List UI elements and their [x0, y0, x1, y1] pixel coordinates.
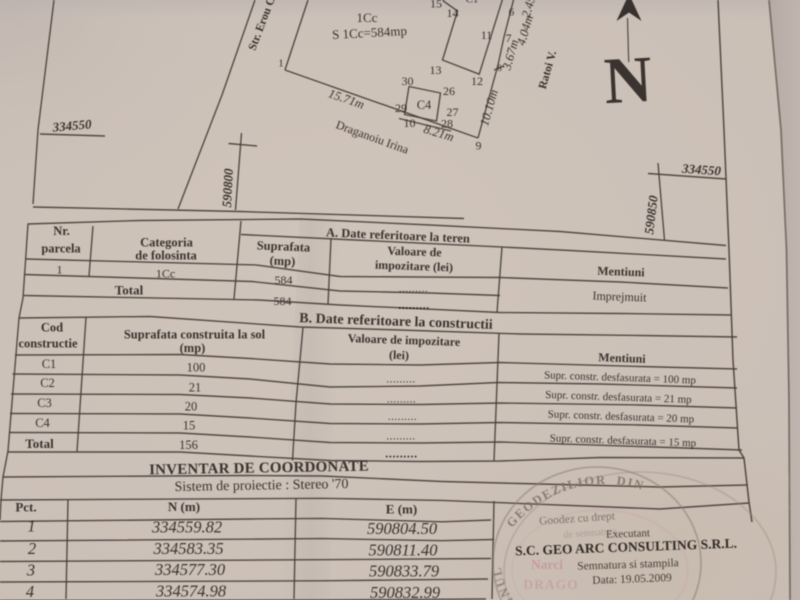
svg-text:Suprafata construita la sol: Suprafata construita la sol [124, 328, 266, 342]
svg-text:Sistem de proiectie : Stereo ': Sistem de proiectie : Stereo '70 [174, 477, 348, 495]
svg-text:4: 4 [26, 582, 34, 600]
svg-text:590804.50: 590804.50 [367, 519, 438, 538]
svg-text:21: 21 [189, 381, 202, 395]
svg-text:parcela: parcela [41, 242, 81, 256]
svg-text:.........: ......... [387, 394, 416, 406]
svg-text:Pct.: Pct. [15, 500, 36, 515]
svg-text:Categoria: Categoria [140, 236, 194, 250]
svg-text:30: 30 [402, 74, 414, 88]
svg-text:1Cc: 1Cc [357, 10, 378, 25]
svg-text:(lei): (lei) [389, 348, 409, 363]
svg-text:.........: ......... [398, 298, 430, 312]
svg-text:DRAGO: DRAGO [523, 577, 578, 592]
svg-text:(mp): (mp) [180, 341, 206, 355]
svg-text:Cod: Cod [41, 321, 63, 335]
svg-text:100: 100 [187, 361, 206, 375]
svg-text:334577.30: 334577.30 [154, 560, 226, 579]
svg-text:N: N [602, 43, 653, 118]
svg-text:Valoare de: Valoare de [387, 244, 442, 260]
svg-text:.........: ......... [399, 283, 428, 295]
svg-text:29: 29 [395, 101, 407, 115]
svg-text:584: 584 [274, 294, 292, 308]
svg-text:10: 10 [404, 116, 416, 130]
svg-text:590811.40: 590811.40 [369, 541, 439, 560]
svg-text:Nr.: Nr. [53, 224, 70, 238]
svg-text:15: 15 [183, 419, 196, 433]
svg-text:C3: C3 [37, 396, 52, 410]
svg-text:6: 6 [509, 7, 515, 19]
svg-text:Narci: Narci [531, 557, 563, 572]
svg-text:N (m): N (m) [168, 499, 200, 514]
svg-text:C4: C4 [417, 98, 432, 112]
svg-text:(mp): (mp) [269, 253, 295, 268]
svg-text:334550: 334550 [681, 161, 722, 179]
svg-text:.........: ......... [385, 447, 417, 461]
svg-text:20: 20 [185, 400, 198, 414]
svg-text:1: 1 [57, 263, 63, 277]
svg-text:334574.98: 334574.98 [155, 582, 227, 600]
svg-text:C4: C4 [35, 416, 50, 430]
svg-text:334583.35: 334583.35 [152, 539, 223, 558]
svg-text:E (m): E (m) [386, 502, 417, 517]
svg-text:590833.79: 590833.79 [369, 562, 439, 581]
svg-text:2: 2 [28, 539, 36, 558]
svg-text:Suprafata: Suprafata [256, 238, 311, 254]
svg-text:156: 156 [179, 438, 198, 452]
svg-text:Total: Total [115, 283, 144, 298]
svg-text:11: 11 [481, 28, 493, 42]
svg-text:Imprejmuit: Imprejmuit [592, 289, 647, 305]
svg-text:C1: C1 [466, 0, 479, 6]
svg-text:de folosinta: de folosinta [135, 249, 197, 263]
svg-text:1: 1 [27, 517, 35, 536]
svg-text:Total: Total [25, 436, 54, 451]
svg-text:12: 12 [471, 74, 483, 88]
svg-text:1: 1 [278, 58, 284, 70]
svg-text:590832.99: 590832.99 [370, 583, 440, 600]
svg-text:1Cc: 1Cc [156, 267, 175, 281]
svg-text:13: 13 [430, 63, 442, 77]
svg-text:9: 9 [476, 139, 482, 153]
svg-text:26: 26 [443, 84, 455, 98]
svg-text:15: 15 [430, 0, 442, 11]
svg-text:14: 14 [447, 6, 459, 20]
svg-text:C2: C2 [40, 376, 55, 390]
svg-text:590800: 590800 [219, 168, 236, 208]
svg-text:Mentiuni: Mentiuni [598, 350, 646, 366]
svg-text:.........: ......... [388, 411, 417, 423]
svg-text:584: 584 [275, 273, 293, 287]
svg-text:Mentiuni: Mentiuni [597, 264, 645, 280]
svg-text:impozitare (lei): impozitare (lei) [375, 258, 454, 275]
svg-text:.........: ......... [386, 374, 415, 386]
svg-text:334559.82: 334559.82 [151, 518, 222, 537]
svg-text:3: 3 [26, 561, 35, 580]
svg-text:.........: ......... [386, 431, 415, 443]
svg-text:constructie: constructie [18, 337, 77, 351]
svg-text:C1: C1 [42, 357, 57, 371]
